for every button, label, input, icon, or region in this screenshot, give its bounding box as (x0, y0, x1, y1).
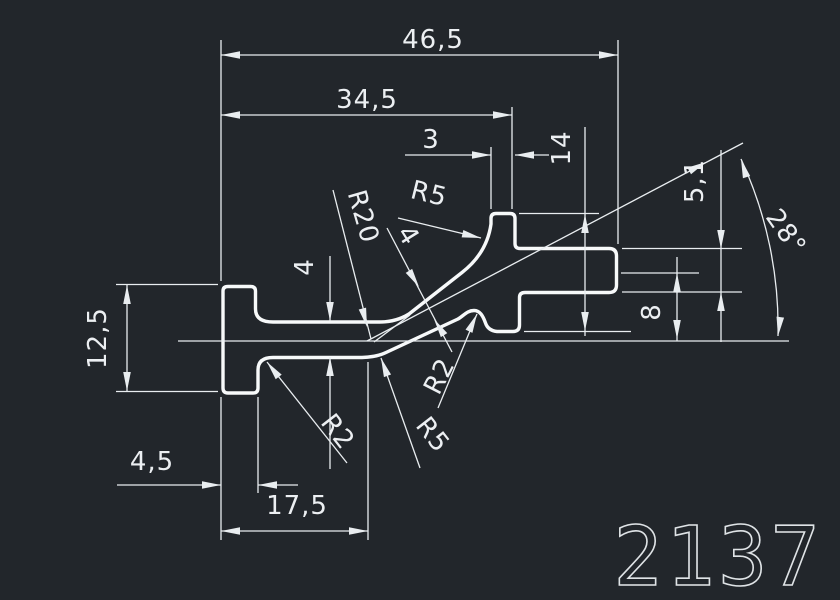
arrowhead (741, 159, 750, 178)
arrowhead (359, 308, 367, 327)
dim-arm-thickness: 5,1 (680, 159, 710, 203)
arrowhead (221, 111, 240, 119)
arrowhead (466, 314, 477, 333)
arrowhead (258, 481, 277, 489)
arrowhead (673, 273, 681, 292)
arrowhead (515, 151, 534, 159)
arrowhead (581, 312, 589, 331)
arrowhead (472, 151, 491, 159)
dim-foot-width: 4,5 (130, 447, 174, 477)
dim-step-depth: 14 (547, 130, 577, 165)
dim-web-thickness-incline: 4 (390, 220, 425, 251)
arrowhead (462, 230, 481, 238)
dim-web-thickness-left: 4 (290, 258, 320, 276)
cad-viewport[interactable]: 46,5 34,5 3 14 5,1 28° 8 12,5 4 R20 R5 4… (0, 0, 840, 600)
angle-arc (741, 159, 778, 336)
arrowhead (267, 362, 282, 379)
label-r5-top: R5 (408, 175, 451, 213)
label-r2-bump: R2 (418, 353, 461, 399)
label-r5-bottom: R5 (409, 411, 455, 458)
arrowhead (406, 269, 419, 287)
drawing-canvas[interactable]: 46,5 34,5 3 14 5,1 28° 8 12,5 4 R20 R5 4… (0, 0, 840, 600)
part-number: 2137 (613, 510, 822, 600)
arrowhead (717, 230, 725, 249)
arrowhead (493, 111, 512, 119)
arrowhead (349, 527, 368, 535)
arrowhead (381, 358, 391, 377)
dim-slot-offset: 8 (637, 303, 667, 321)
label-r20: R20 (341, 187, 385, 247)
arrowhead (202, 481, 221, 489)
dim-bottom-length: 17,5 (266, 491, 328, 521)
label-r2-foot: R2 (314, 408, 360, 455)
dim-upper-width: 34,5 (336, 85, 398, 115)
arrowhead (673, 320, 681, 339)
dim-foot-height: 12,5 (83, 307, 113, 369)
dim-total-width: 46,5 (402, 25, 464, 55)
arrowhead (581, 214, 589, 233)
arrowhead (326, 302, 334, 321)
dim-step-width: 3 (422, 125, 440, 155)
dimension-lines-layer (116, 40, 789, 540)
arrowhead (326, 357, 334, 376)
arrowhead (221, 527, 240, 535)
arrowhead (123, 285, 131, 304)
arrowhead (717, 292, 725, 311)
arrowhead (123, 372, 131, 391)
arrowhead (599, 51, 618, 59)
arrowhead (221, 51, 240, 59)
